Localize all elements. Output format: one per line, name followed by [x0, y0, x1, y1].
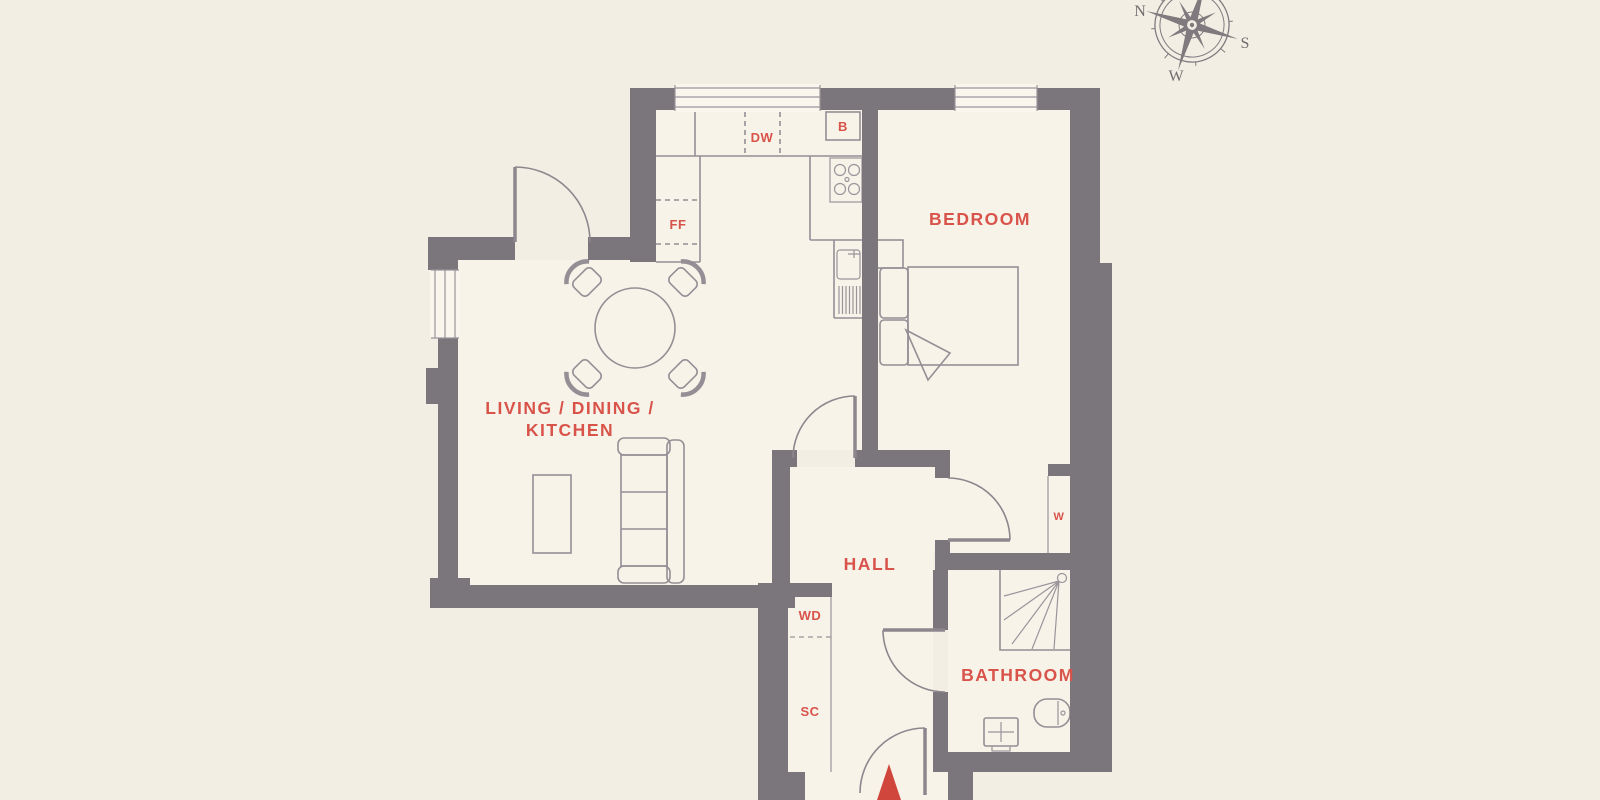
window-living	[430, 270, 460, 338]
wall-bedroom-bathroom	[935, 553, 1080, 570]
living-room-label-line2: KITCHEN	[526, 420, 614, 440]
dishwasher-label: DW	[751, 130, 774, 145]
window-bedroom	[955, 84, 1037, 112]
wardrobe-label: W	[1054, 511, 1065, 523]
storage-cupboard-label: SC	[800, 704, 819, 719]
living-room-label: LIVING / DINING /	[485, 398, 654, 418]
bedroom-label: BEDROOM	[929, 209, 1031, 229]
boiler-label: B	[838, 119, 848, 134]
hall-label: HALL	[844, 554, 897, 574]
wall-kitchen-left	[630, 88, 656, 262]
wall-closet-west	[758, 595, 788, 772]
wall-right-upper	[1070, 88, 1100, 263]
wall-hall-bath-upper	[933, 570, 948, 630]
compass-south-label: S	[1241, 35, 1250, 52]
wall-living-bottom	[438, 585, 795, 608]
balcony-door	[515, 167, 590, 242]
compass-west-label: W	[1168, 68, 1184, 85]
wall-closet-top	[758, 583, 832, 597]
wall-wardrobe-top	[1048, 464, 1070, 476]
window-kitchen	[675, 84, 820, 112]
washer-dryer-label: WD	[799, 608, 822, 623]
wall-hall-bath-lower	[933, 692, 948, 758]
compass-rose: N S W	[1122, 0, 1262, 95]
wall-kitchen-bedroom	[862, 110, 878, 455]
wall-entrance-west	[758, 772, 805, 800]
floorplan-drawing: LIVING / DINING / KITCHEN BEDROOM HALL B…	[0, 0, 1600, 800]
fridge-freezer-label: FF	[670, 217, 687, 232]
wall-right-lower	[1070, 263, 1112, 772]
bathroom-label: BATHROOM	[961, 665, 1075, 685]
compass-north-label: N	[1134, 3, 1146, 20]
wall-entrance-east	[948, 752, 973, 800]
floorplan-page: LIVING / DINING / KITCHEN BEDROOM HALL B…	[0, 0, 1600, 800]
wall-balcony-east	[588, 237, 656, 260]
